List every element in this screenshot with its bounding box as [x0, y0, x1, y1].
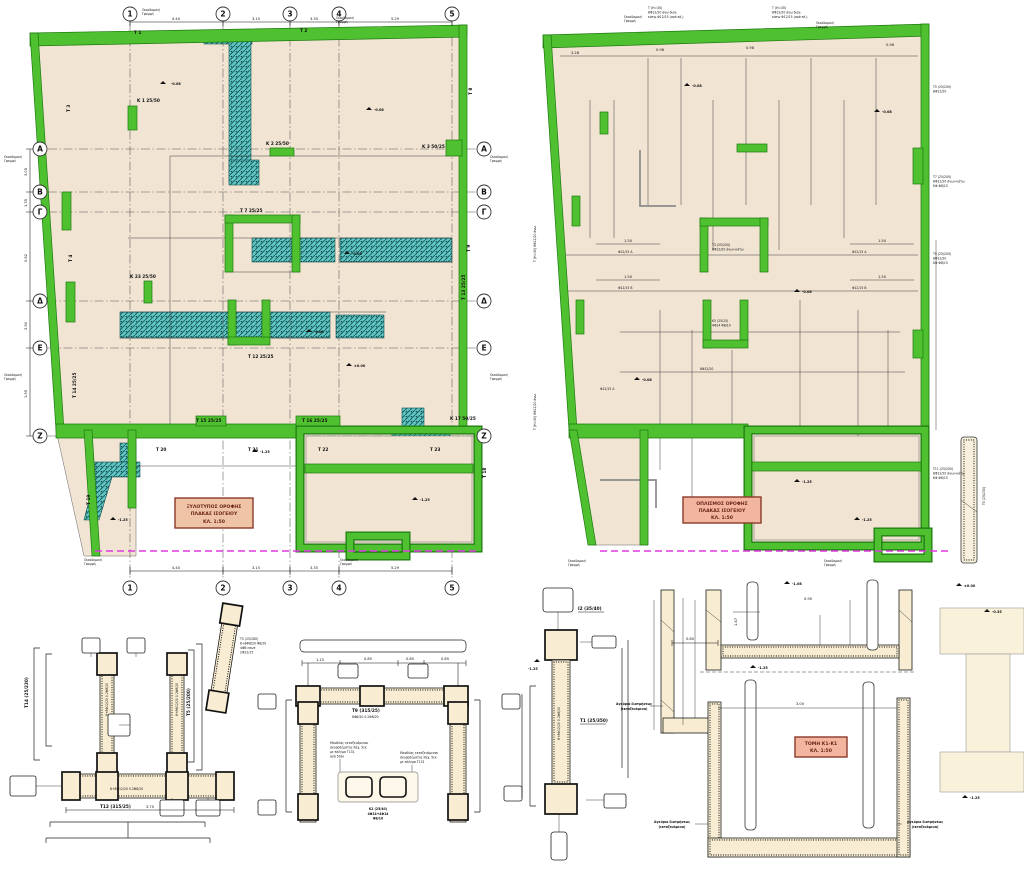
- building-line-label: Γραμμή: [142, 12, 154, 16]
- rebar-note: Φ8/10: [373, 817, 383, 821]
- grid-label: 3: [287, 10, 292, 19]
- building-line-label: Γραμμή: [4, 377, 16, 381]
- dim-text: 3.35: [310, 17, 318, 21]
- dim-text: 1.15: [316, 658, 324, 662]
- dim-text: 4.40: [172, 17, 181, 21]
- detail-t9-group: 1.15 0.85 0.85 0.85 T9 (315/25) 8Φ8/20 0…: [258, 640, 522, 822]
- building-line-label: Γραμμή: [340, 562, 352, 566]
- dim-text: 1.35: [24, 199, 28, 207]
- callout-box: [127, 638, 145, 653]
- note-line: Τ (Η=30) 8Φ12/20 άνω: [533, 394, 537, 431]
- elevation-value: -0.08: [882, 110, 892, 114]
- dim-text: 1.50: [624, 275, 633, 279]
- dim-text: 0.85: [364, 657, 372, 661]
- dim-text: 3.70: [146, 805, 155, 809]
- note-line: 8Φ12/20 άνω+κάτω: [933, 180, 965, 184]
- anchor-note: (εκτοξευόμενα): [659, 825, 686, 829]
- elevation-value: -0.08: [692, 84, 702, 88]
- note-line: 8Φ12/20: [933, 257, 946, 261]
- elevation-value: -1.25: [118, 518, 128, 522]
- right-plan: Τ5 (25/230) Τ (Η=30) 8Φ12/20 άνω διαν. κ…: [533, 6, 986, 567]
- elevation-value: -0.08: [374, 108, 384, 112]
- note-line: 8Φ12/20: [933, 90, 946, 94]
- wall-label: T 4: [68, 255, 74, 262]
- shaft-label: 8Φ12/20 άνω+κάτω: [712, 248, 744, 252]
- title-line: ΚΛ. 1:50: [711, 515, 733, 521]
- rebar-note: 8+8Φ12/20 0.2Φ8/20: [110, 787, 143, 791]
- detail-label: T9 (315/25): [352, 708, 380, 714]
- lap-splice-bar: [747, 582, 758, 640]
- grid-label: A: [37, 145, 43, 154]
- title-line: ΠΛΑΚΑΣ ΙΣΟΓΕΙΟΥ: [191, 511, 238, 517]
- callout-box: [551, 832, 567, 860]
- callout-box: [160, 800, 184, 816]
- dim-text: 1.50: [878, 239, 887, 243]
- rebar-note: 8+8Φ12/20 0.2Φ8/20: [175, 683, 179, 716]
- grid-label: Δ: [37, 297, 43, 306]
- rebar-tag: Φ12/15 Β: [852, 286, 866, 290]
- grid-label: Γ: [482, 208, 487, 217]
- adjacent-slab: [966, 654, 1010, 752]
- section-title-box: [795, 737, 847, 757]
- note-line: ΚΦ Φ8/15: [933, 476, 948, 480]
- elevation-value: -1.08: [792, 582, 802, 586]
- detail-t12-group: 3.70 T14 (25/230) T5 (25/200) T12 (315/2…: [10, 603, 266, 843]
- drawing-canvas: 1 2 3 4 5 1 2 3 4 5 A B Γ Δ E Z A B Γ Δ …: [0, 0, 1024, 871]
- dim-text: 3.15: [252, 17, 260, 21]
- title-line: ΚΛ. 1:50: [203, 519, 225, 525]
- detail-label: T1 (25/350): [580, 718, 608, 724]
- note-line: 8+8Φ8/20 Φ8/20: [240, 642, 266, 646]
- rebar-tag: Φ12/15 Α: [852, 250, 867, 254]
- wall-label: T 8: [468, 88, 474, 95]
- shaft-label: 4Φ14 Φ8/10: [712, 324, 731, 328]
- wall-label: T 13 25/25: [461, 275, 467, 300]
- note-line: Τ5 (25/200): [932, 85, 951, 89]
- rebar-bar-label: Τ5 (25/230): [982, 487, 986, 506]
- rebar-tag: Φ12/15 Β: [618, 286, 632, 290]
- lap-splice-bar: [745, 680, 756, 830]
- elevation-value: -1.25: [802, 480, 812, 484]
- adjacent-slab: [940, 608, 1024, 654]
- anchor-note: Αγκύρια διατμήσεως: [654, 820, 690, 824]
- note-line: σκυροδέματος πάχ. 5εκ: [330, 746, 367, 750]
- note-line: 4Φ8 εσωτ.: [240, 646, 256, 650]
- note-line: με πλέγμα Τ131: [330, 750, 355, 754]
- rebar-note: 8+8Φ12/20 0.2Φ8/20: [557, 707, 561, 740]
- wall-label: T 20: [156, 447, 166, 453]
- left-plan: 1 2 3 4 5 1 2 3 4 5 A B Γ Δ E Z A B Γ Δ …: [4, 7, 508, 595]
- lap-splice-bar: [867, 580, 878, 650]
- rebar-section-bar: Τ5 (25/230): [961, 437, 986, 563]
- title-line: ΠΛΑΚΑΣ ΙΣΟΓΕΙΟΥ: [699, 508, 746, 514]
- wall-label: K 23 25/50: [130, 274, 156, 280]
- title-line: ΚΛ. 1:50: [810, 748, 832, 754]
- elevation-value: -0.08: [314, 330, 324, 334]
- adjacent-slab: [940, 752, 1024, 792]
- elevation-value: -1.25: [260, 450, 270, 454]
- rebar-tag: Φ12/15 Α: [618, 250, 633, 254]
- elevation-value: -1.25: [970, 796, 980, 800]
- elevation-value: -0.35: [992, 610, 1002, 614]
- detail-label: I2 (35/40): [578, 606, 602, 612]
- grid-label: 1: [127, 10, 132, 19]
- note-line: ανά 50εκ: [330, 755, 344, 759]
- wall-label: T 1: [134, 30, 141, 36]
- dim-text: 0.85: [406, 657, 414, 661]
- note-line: 8Φ12/20 άνω διαν.: [772, 11, 801, 15]
- wall-label: T 14 25/25: [72, 373, 78, 398]
- building-line-label: Γραμμή: [336, 20, 348, 24]
- wall-label: T 7 25/25: [240, 208, 262, 214]
- elevation-value: ±0.00: [354, 364, 366, 368]
- note-line: ΚΦ Φ8/15: [933, 261, 948, 265]
- building-line-label: Γραμμή: [490, 377, 502, 381]
- dim-text: 3.28: [571, 51, 580, 55]
- callout-box: [592, 636, 616, 648]
- shaft-label: Κ5 (25/25): [712, 319, 728, 323]
- building-line-label: Γραμμή: [4, 159, 16, 163]
- wall-label: K 3 50/25: [422, 144, 445, 150]
- detail-label: K2 (25/40): [369, 807, 388, 811]
- elevation-value: -1.25: [528, 667, 538, 671]
- anchor-note: (εκτοξευόμενα): [912, 825, 939, 829]
- detail-label: T12 (315/25): [100, 804, 131, 810]
- note-line: 8Φ12/20 άνω διαν.: [648, 11, 677, 15]
- grid-label: E: [37, 344, 42, 353]
- dim-text: 0.98: [746, 46, 755, 50]
- callout-box: [196, 800, 220, 816]
- wall-label: K 2 25/50: [266, 141, 289, 147]
- dim-text: 1.50: [624, 239, 633, 243]
- wall-label: T 22: [318, 447, 328, 453]
- dim-text: 1.50: [878, 275, 887, 279]
- dim-text: 1.47: [734, 618, 738, 626]
- grid-label: 2: [220, 10, 225, 19]
- detail-section-k1-group: 0.60 1.47 3.00 0.90 ΤΟΜΗ Κ1-Κ1 ΚΛ. 1:50 …: [616, 580, 1024, 857]
- anchor-note: Αγκύρια διατμήσεως: [907, 820, 943, 824]
- elevation-value: -0.08: [642, 378, 652, 382]
- title-line: ΟΠΛΙΣΜΟΣ ΟΡΟΦΗΣ: [696, 501, 747, 507]
- dim-text: 3.90: [24, 321, 28, 330]
- elevation-value: -0.08: [802, 290, 812, 294]
- callout-box: [604, 794, 626, 808]
- dim-text: 0.98: [656, 48, 665, 52]
- grid-label: 5: [449, 10, 454, 19]
- wall-label: T 15 25/25: [196, 418, 221, 424]
- elevation-value: -1.25: [862, 518, 872, 522]
- grid-label: 2: [220, 584, 225, 593]
- grid-label: 3: [287, 584, 292, 593]
- building-line-label: Γραμμή: [490, 159, 502, 163]
- grid-label: Z: [481, 432, 487, 441]
- callout-box: [258, 800, 276, 815]
- rebar-tag: 8Φ12/20: [700, 367, 713, 371]
- rebar-note: 4Φ14+4Φ14: [368, 812, 390, 816]
- note-line: κάτω Φ12/15 (ανά πλ.): [648, 15, 684, 19]
- title-line: ΞΥΛΟΤΥΠΟΣ ΟΡΟΦΗΣ: [187, 504, 242, 510]
- dim-text: 3.05: [24, 168, 28, 176]
- lap-splice-bar: [863, 682, 874, 828]
- dim-text: 3.00: [796, 702, 805, 706]
- elevation-value: -1.25: [758, 666, 768, 670]
- dim-text: 5.29: [391, 566, 400, 570]
- note-line: Μανδύας εκτοξευόμενου: [400, 751, 439, 755]
- grid-label: 5: [449, 584, 454, 593]
- wall-label: T 19: [86, 495, 92, 505]
- wall-label: K 1 25/50: [137, 98, 160, 104]
- wall-label: T 21: [248, 447, 258, 453]
- callout-box: [504, 786, 522, 801]
- title-box-right: ΟΠΛΙΣΜΟΣ ΟΡΟΦΗΣ ΠΛΑΚΑΣ ΙΣΟΓΕΙΟΥ ΚΛ. 1:50: [683, 497, 761, 523]
- wall-label: T 2: [300, 28, 307, 34]
- anchor-note: Αγκύρια διατμήσεως: [616, 702, 652, 706]
- elevation-value: -0.08: [352, 252, 362, 256]
- dim-text: 0.62: [24, 254, 28, 262]
- elevation-value: -1.25: [420, 498, 430, 502]
- dim-text: 0.90: [804, 597, 813, 601]
- rebar-note: 8+8Φ12/20 0.2Φ8/20: [105, 683, 109, 716]
- cad-drawing-page: 1 2 3 4 5 1 2 3 4 5 A B Γ Δ E Z A B Γ Δ …: [0, 0, 1024, 871]
- right-plan-side-notes: Τ5 (25/200) 8Φ12/20 Τ7 (25/200) 8Φ12/20 …: [932, 85, 965, 480]
- note-line: 2Φ12/15: [240, 651, 253, 655]
- dim-text: 4.40: [172, 566, 181, 570]
- building-line-label: Γραμμή: [816, 25, 828, 29]
- callout-box: [502, 694, 520, 709]
- wall-label: T 12 25/25: [248, 354, 273, 360]
- wall-label: T 18: [482, 468, 488, 478]
- rebar-tag: Φ12/15 Α: [600, 387, 615, 391]
- note-line: ΚΦ Φ8/15: [933, 184, 948, 188]
- note-line: Τ7 (25/200): [932, 175, 951, 179]
- building-line-label: Γραμμή: [84, 562, 96, 566]
- dim-text: 0.85: [441, 657, 449, 661]
- grid-label: Z: [37, 432, 43, 441]
- note-line: Τ (Η=30) 8Φ12/20 άνω: [533, 226, 537, 263]
- grid-label: Δ: [481, 297, 487, 306]
- grid-label: 1: [127, 584, 132, 593]
- note-line: T5 (25/280): [239, 637, 258, 641]
- detail-t5-wall: [206, 603, 243, 713]
- note-line: κάτω Φ12/15 (ανά πλ.): [772, 15, 808, 19]
- title-box-left: ΞΥΛΟΤΥΠΟΣ ΟΡΟΦΗΣ ΠΛΑΚΑΣ ΙΣΟΓΕΙΟΥ ΚΛ. 1:5…: [175, 498, 253, 528]
- note-line: Τ11 (25/200): [932, 467, 953, 471]
- wall-label: T 16 25/25: [302, 418, 327, 424]
- note-line: 8Φ12/20 άνω+κάτω: [933, 472, 965, 476]
- detail-label: T14 (25/230): [24, 677, 30, 708]
- wall-label: T 23: [430, 447, 440, 453]
- dim-text: 1.95: [24, 390, 28, 398]
- dim-text: 0.98: [886, 43, 895, 47]
- note-line: Μανδύας εκτοξευόμενου: [330, 741, 369, 745]
- grid-label: B: [481, 188, 487, 197]
- callout-box: [82, 638, 100, 653]
- detail-label: T5 (25/200): [186, 688, 192, 716]
- note-line: με πλέγμα Τ131: [400, 760, 425, 764]
- title-line: ΤΟΜΗ Κ1-Κ1: [805, 741, 837, 747]
- building-line-label: Γραμμή: [568, 563, 580, 567]
- note-line: Τ (Η=30): [771, 6, 786, 10]
- building-line-label: Γραμμή: [624, 19, 636, 23]
- callout-box: [258, 694, 276, 709]
- elevation-value: ±0.00: [964, 584, 976, 588]
- grid-label: Γ: [38, 208, 43, 217]
- grid-label: E: [481, 344, 486, 353]
- grid-label: B: [37, 188, 43, 197]
- callout-box: [543, 588, 573, 612]
- grid-label: 4: [336, 584, 341, 593]
- grid-label: A: [481, 145, 487, 154]
- callout-box: [338, 664, 358, 678]
- elevation-value: -0.08: [171, 82, 181, 86]
- wall-label: K 17 50/25: [450, 416, 476, 422]
- dim-text: 3.15: [252, 566, 260, 570]
- wall-label: T 3: [66, 105, 72, 112]
- callout-box: [10, 776, 36, 796]
- wall-label: T 9: [466, 245, 472, 252]
- rebar-note: 8Φ8/20 0.2Φ8/20: [352, 715, 379, 719]
- dim-text: 0.60: [686, 637, 695, 641]
- note-line: σκυροδέματος πάχ. 5εκ: [400, 756, 437, 760]
- dim-text: 5.29: [391, 17, 400, 21]
- callout-box: [408, 664, 428, 678]
- shaft-label: Τ3 (25/200): [711, 243, 730, 247]
- note-line: Τ9 (25/200): [932, 252, 951, 256]
- building-line-label: Γραμμή: [824, 563, 836, 567]
- detail-t1-group: I2 (35/40) T1 (25/350) 8+8Φ12/20 0.2Φ8/2…: [522, 588, 626, 860]
- anchor-note: (εκτοξευόμενα): [621, 707, 648, 711]
- dim-text: 3.35: [310, 566, 318, 570]
- note-line: Τ (Η=30): [647, 6, 662, 10]
